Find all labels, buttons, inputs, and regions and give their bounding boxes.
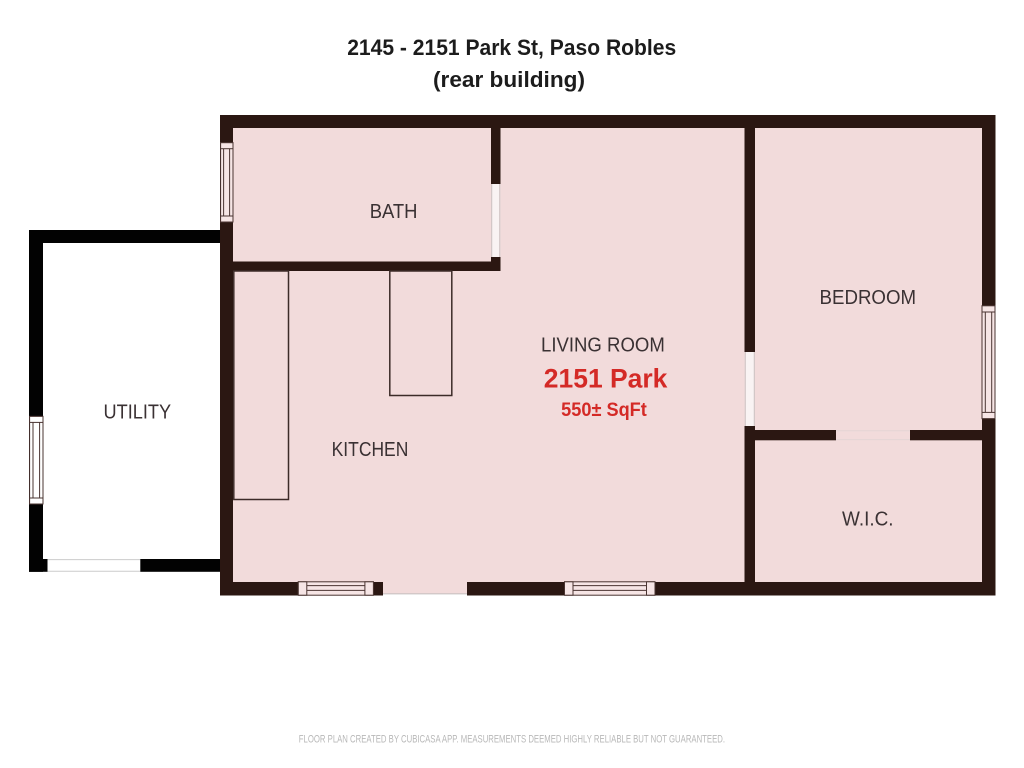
svg-text:KITCHEN: KITCHEN [332,439,409,461]
svg-text:2145 - 2151 Park St, Paso Robl: 2145 - 2151 Park St, Paso Robles [347,35,676,60]
svg-text:W.I.C.: W.I.C. [842,508,894,530]
svg-text:BEDROOM: BEDROOM [820,287,917,309]
svg-text:2151 Park: 2151 Park [544,364,669,394]
svg-text:(rear building): (rear building) [433,67,585,92]
svg-text:FLOOR PLAN CREATED BY CUBICASA: FLOOR PLAN CREATED BY CUBICASA APP. MEAS… [299,733,725,745]
svg-text:550± SqFt: 550± SqFt [561,399,647,421]
svg-text:UTILITY: UTILITY [104,401,172,423]
svg-text:BATH: BATH [370,201,418,223]
svg-text:LIVING ROOM: LIVING ROOM [541,335,665,357]
